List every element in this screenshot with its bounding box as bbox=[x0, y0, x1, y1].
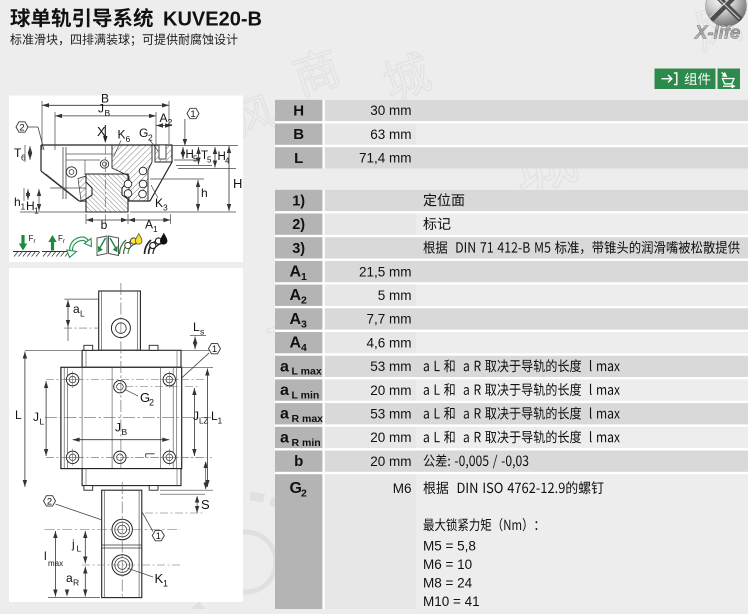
svg-text:b: b bbox=[101, 218, 108, 232]
svg-text:L: L bbox=[80, 309, 85, 319]
svg-text:l: l bbox=[44, 549, 47, 563]
svg-text:a: a bbox=[280, 382, 289, 399]
svg-text:71,4 mm: 71,4 mm bbox=[359, 151, 412, 166]
svg-text:20 mm: 20 mm bbox=[370, 430, 411, 445]
svg-text:b: b bbox=[294, 453, 303, 470]
svg-text:2: 2 bbox=[168, 117, 173, 127]
svg-text:a: a bbox=[280, 429, 289, 446]
svg-text:B: B bbox=[122, 427, 128, 437]
svg-text:G: G bbox=[139, 126, 148, 140]
svg-text:4: 4 bbox=[301, 342, 307, 354]
svg-text:a: a bbox=[280, 406, 289, 423]
svg-text:L: L bbox=[15, 408, 22, 422]
svg-text:2: 2 bbox=[47, 496, 52, 507]
svg-text:2: 2 bbox=[301, 488, 307, 500]
svg-text:1): 1) bbox=[292, 193, 305, 209]
svg-text:30 mm: 30 mm bbox=[370, 103, 411, 118]
svg-text:A: A bbox=[290, 264, 302, 281]
svg-text:M10 = 41: M10 = 41 bbox=[423, 594, 480, 609]
svg-text:53 mm: 53 mm bbox=[370, 407, 411, 422]
svg-text:R: R bbox=[73, 578, 79, 588]
svg-text:a: a bbox=[66, 571, 73, 585]
svg-text:L max: L max bbox=[292, 366, 322, 378]
svg-text:J: J bbox=[98, 102, 104, 116]
svg-text:1: 1 bbox=[190, 109, 195, 120]
svg-text:2: 2 bbox=[149, 398, 154, 408]
svg-text:H: H bbox=[293, 102, 304, 119]
svg-text:J: J bbox=[115, 421, 121, 435]
svg-text:1: 1 bbox=[218, 416, 223, 426]
svg-text:20 mm: 20 mm bbox=[370, 383, 411, 398]
svg-text:2): 2) bbox=[292, 217, 305, 233]
svg-text:3): 3) bbox=[292, 241, 305, 257]
svg-text:A: A bbox=[290, 335, 302, 352]
svg-text:B: B bbox=[293, 126, 304, 143]
svg-text:L min: L min bbox=[292, 389, 320, 401]
svg-text:max: max bbox=[48, 559, 63, 568]
svg-text:M6: M6 bbox=[393, 481, 412, 496]
svg-text:B: B bbox=[105, 108, 111, 118]
svg-text:7,7 mm: 7,7 mm bbox=[366, 312, 411, 327]
svg-text:1: 1 bbox=[153, 224, 158, 234]
svg-text:1: 1 bbox=[301, 271, 307, 283]
svg-text:3: 3 bbox=[301, 318, 307, 330]
svg-text:53 mm: 53 mm bbox=[370, 359, 411, 374]
svg-text:A: A bbox=[290, 311, 302, 328]
svg-text:A: A bbox=[160, 111, 168, 125]
svg-text:A: A bbox=[290, 287, 302, 304]
svg-text:s: s bbox=[200, 327, 204, 337]
svg-text:KUVE20-B: KUVE20-B bbox=[163, 9, 262, 31]
svg-text:X-life: X-life bbox=[694, 22, 740, 43]
svg-text:1: 1 bbox=[21, 202, 26, 212]
svg-text:M5 = 5,8: M5 = 5,8 bbox=[423, 539, 476, 554]
svg-text:L: L bbox=[193, 320, 200, 334]
svg-text:K: K bbox=[118, 127, 126, 141]
svg-text:r: r bbox=[34, 239, 36, 245]
svg-text:a: a bbox=[73, 302, 80, 316]
svg-text:H: H bbox=[233, 176, 242, 191]
svg-text:1: 1 bbox=[163, 579, 168, 589]
svg-text:2: 2 bbox=[301, 295, 307, 307]
svg-text:R min: R min bbox=[292, 437, 321, 449]
svg-text:4,6 mm: 4,6 mm bbox=[366, 335, 411, 350]
svg-text:M6 = 10: M6 = 10 bbox=[423, 557, 472, 572]
svg-text:L: L bbox=[77, 544, 82, 554]
svg-text:A: A bbox=[145, 218, 153, 232]
svg-text:R max: R max bbox=[292, 413, 324, 425]
svg-text:M8 = 24: M8 = 24 bbox=[423, 576, 473, 591]
svg-text:5 mm: 5 mm bbox=[378, 288, 412, 303]
svg-text:K: K bbox=[155, 196, 163, 210]
svg-text:20 mm: 20 mm bbox=[370, 454, 411, 469]
svg-text:21,5 mm: 21,5 mm bbox=[359, 264, 412, 279]
svg-text:j: j bbox=[71, 537, 75, 551]
svg-text:3: 3 bbox=[163, 203, 168, 213]
svg-text:1: 1 bbox=[212, 344, 217, 355]
svg-text:J: J bbox=[33, 410, 39, 424]
svg-text:L: L bbox=[294, 150, 303, 167]
svg-text:a: a bbox=[280, 358, 289, 375]
svg-text:r: r bbox=[63, 239, 65, 245]
svg-text:L: L bbox=[40, 417, 45, 427]
svg-text:63 mm: 63 mm bbox=[370, 127, 411, 142]
svg-text:S: S bbox=[201, 497, 210, 512]
svg-text:2: 2 bbox=[19, 123, 24, 134]
svg-text:h: h bbox=[201, 186, 208, 200]
svg-text:6: 6 bbox=[126, 134, 131, 144]
svg-text:1: 1 bbox=[156, 531, 161, 542]
svg-text:5: 5 bbox=[207, 156, 212, 165]
